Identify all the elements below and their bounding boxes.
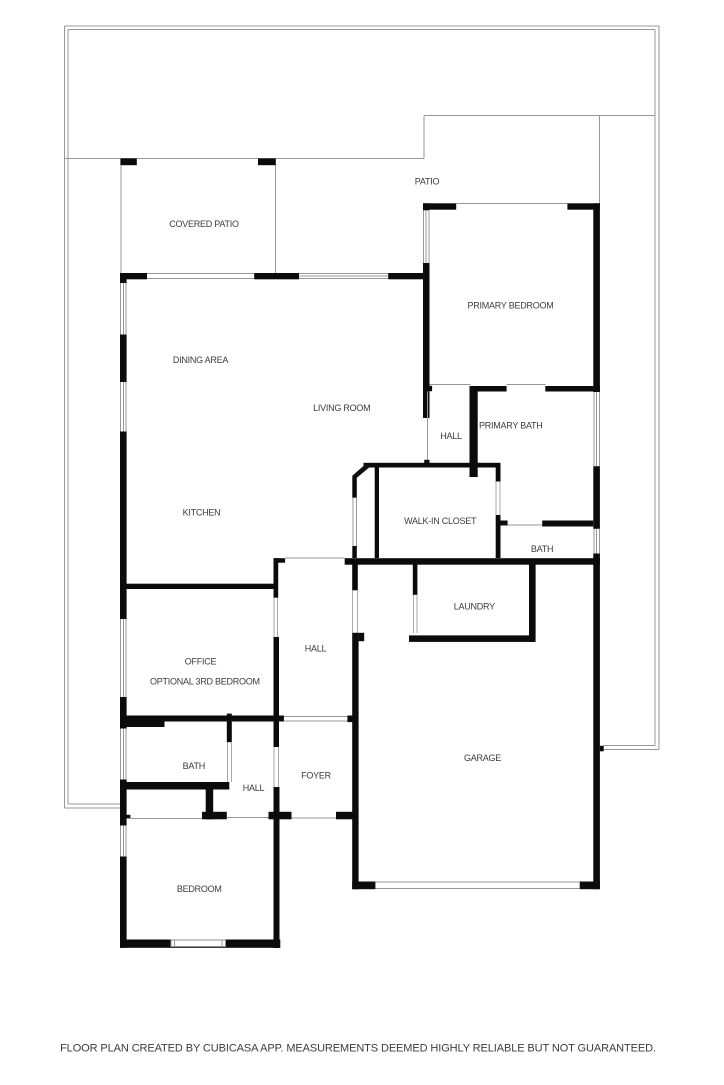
svg-text:PRIMARY BEDROOM: PRIMARY BEDROOM xyxy=(468,300,554,310)
svg-text:KITCHEN: KITCHEN xyxy=(183,508,221,518)
svg-text:LAUNDRY: LAUNDRY xyxy=(454,602,495,612)
svg-text:OPTIONAL 3RD BEDROOM: OPTIONAL 3RD BEDROOM xyxy=(150,677,260,687)
svg-text:PRIMARY BATH: PRIMARY BATH xyxy=(479,420,543,430)
svg-text:FLOOR PLAN CREATED BY CUBICASA: FLOOR PLAN CREATED BY CUBICASA APP. MEAS… xyxy=(60,1042,656,1054)
svg-text:DINING AREA: DINING AREA xyxy=(173,355,229,365)
svg-text:PATIO: PATIO xyxy=(415,176,440,186)
svg-text:LIVING ROOM: LIVING ROOM xyxy=(313,403,370,413)
svg-text:WALK-IN CLOSET: WALK-IN CLOSET xyxy=(404,516,477,526)
svg-text:BATH: BATH xyxy=(531,544,553,554)
svg-text:HALL: HALL xyxy=(305,644,327,654)
svg-text:FOYER: FOYER xyxy=(301,770,332,780)
svg-text:GARAGE: GARAGE xyxy=(464,753,501,763)
svg-text:HALL: HALL xyxy=(440,431,462,441)
svg-text:OFFICE: OFFICE xyxy=(185,657,217,667)
svg-text:BEDROOM: BEDROOM xyxy=(177,884,222,894)
svg-text:BATH: BATH xyxy=(183,761,205,771)
svg-text:HALL: HALL xyxy=(243,783,265,793)
svg-text:COVERED PATIO: COVERED PATIO xyxy=(169,219,239,229)
